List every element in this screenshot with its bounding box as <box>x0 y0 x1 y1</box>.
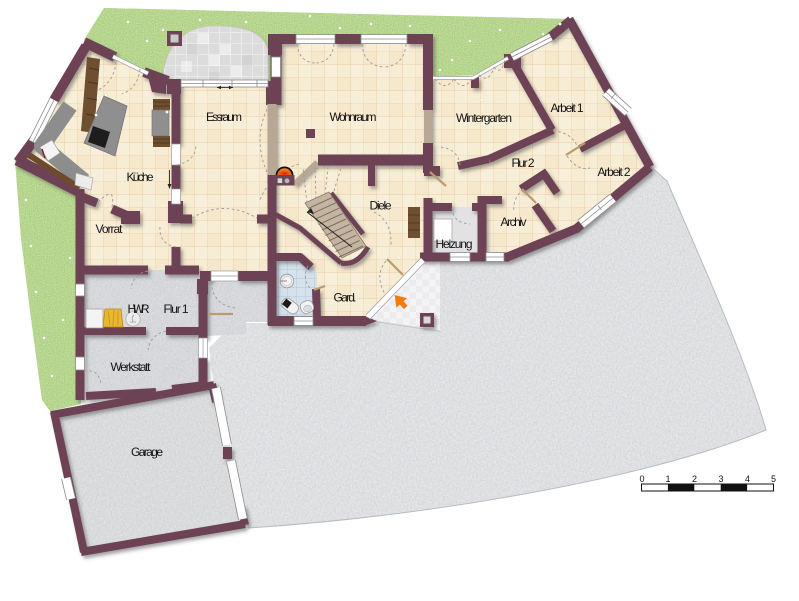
svg-text:3: 3 <box>718 474 723 484</box>
svg-text:Garage: Garage <box>131 445 163 459</box>
svg-text:Arbeit 1: Arbeit 1 <box>551 101 584 115</box>
svg-text:4: 4 <box>745 474 750 484</box>
svg-text:HWR: HWR <box>128 302 150 316</box>
svg-text:0: 0 <box>639 474 644 484</box>
svg-text:Wohnraum: Wohnraum <box>330 110 377 124</box>
svg-text:2: 2 <box>692 474 697 484</box>
svg-text:Heizung: Heizung <box>436 237 473 251</box>
svg-text:Werkstatt: Werkstatt <box>111 360 152 374</box>
svg-text:Archiv: Archiv <box>501 215 527 229</box>
svg-text:Vorrat: Vorrat <box>96 222 124 236</box>
svg-text:Arbeit 2: Arbeit 2 <box>598 165 631 179</box>
svg-text:Küche: Küche <box>127 170 154 184</box>
svg-text:5: 5 <box>771 474 776 484</box>
svg-text:Flur 1: Flur 1 <box>164 302 189 316</box>
svg-text:Essraum: Essraum <box>206 110 242 124</box>
svg-text:Wintergarten: Wintergarten <box>456 111 512 125</box>
svg-text:1: 1 <box>665 474 670 484</box>
svg-text:Diele: Diele <box>370 199 392 213</box>
svg-text:Gard.: Gard. <box>334 291 357 305</box>
svg-text:Flur 2: Flur 2 <box>512 156 535 170</box>
